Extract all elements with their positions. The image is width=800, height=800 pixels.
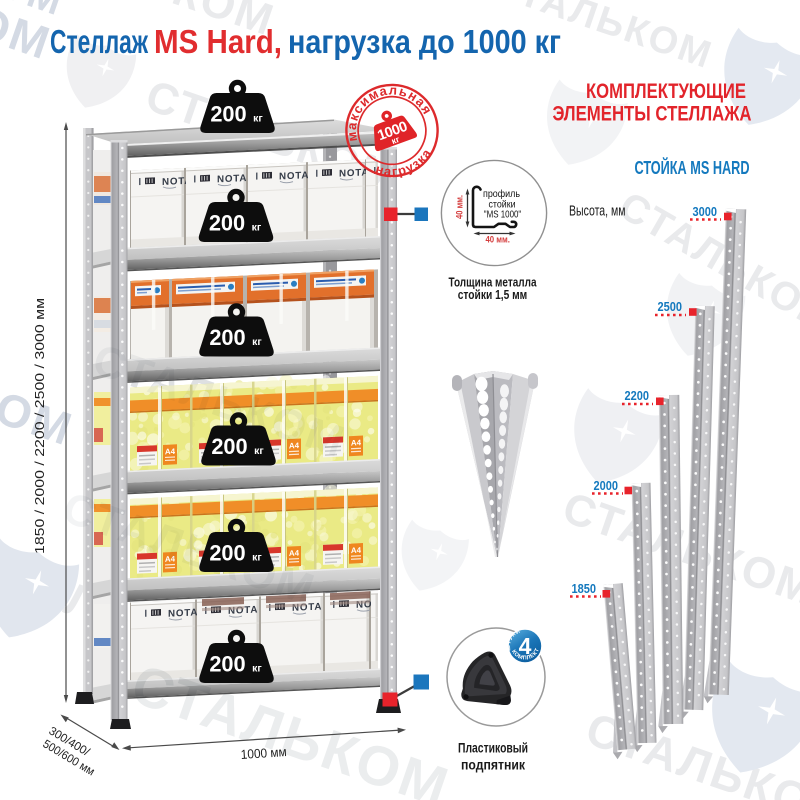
svg-text:200: 200 xyxy=(209,325,245,350)
svg-text:кг: кг xyxy=(254,445,264,457)
svg-text:200: 200 xyxy=(209,652,245,677)
svg-text:2000: 2000 xyxy=(594,479,619,493)
svg-text:A4: A4 xyxy=(165,447,176,457)
svg-text:"MS 1000": "MS 1000" xyxy=(484,210,522,221)
svg-text:подпятник: подпятник xyxy=(461,758,525,773)
svg-text:NOTA: NOTA xyxy=(279,170,309,182)
svg-text:A4: A4 xyxy=(351,546,362,556)
svg-text:1850: 1850 xyxy=(572,582,597,596)
svg-text:3000: 3000 xyxy=(693,205,718,219)
svg-text:A4: A4 xyxy=(289,549,300,559)
svg-text:A4: A4 xyxy=(351,438,362,448)
svg-text:нагрузка до 1000 кг: нагрузка до 1000 кг xyxy=(288,23,561,60)
svg-text:СТОЙКА MS HARD: СТОЙКА MS HARD xyxy=(635,157,750,178)
svg-text:кг: кг xyxy=(253,113,263,125)
svg-text:КОМПЛЕКТУЮЩИЕ: КОМПЛЕКТУЮЩИЕ xyxy=(586,80,746,103)
svg-text:кг: кг xyxy=(252,222,262,234)
svg-text:кг: кг xyxy=(252,336,262,348)
svg-text:2200: 2200 xyxy=(625,389,650,403)
svg-text:MS Hard,: MS Hard, xyxy=(154,23,282,60)
svg-text:200: 200 xyxy=(209,211,245,236)
svg-text:стойки 1,5 мм: стойки 1,5 мм xyxy=(458,288,528,302)
svg-text:40 мм.: 40 мм. xyxy=(455,195,465,219)
svg-text:Пластиковый: Пластиковый xyxy=(458,741,528,756)
svg-text:NOTA: NOTA xyxy=(339,167,369,179)
svg-text:кг: кг xyxy=(252,552,262,564)
svg-text:Высота, мм: Высота, мм xyxy=(569,204,626,220)
svg-text:Стеллаж: Стеллаж xyxy=(50,23,148,60)
svg-text:кг: кг xyxy=(252,663,262,675)
svg-text:NOTA: NOTA xyxy=(217,173,247,185)
svg-text:1850 / 2000 / 2200 / 2500 / 30: 1850 / 2000 / 2200 / 2500 / 3000 мм xyxy=(32,298,47,554)
svg-text:200: 200 xyxy=(210,102,246,127)
svg-text:200: 200 xyxy=(211,434,247,459)
svg-text:40 мм.: 40 мм. xyxy=(485,235,510,246)
svg-text:2500: 2500 xyxy=(658,300,683,314)
svg-text:NOTA: NOTA xyxy=(168,607,198,619)
svg-text:профиль: профиль xyxy=(483,188,520,200)
svg-text:1000 мм: 1000 мм xyxy=(240,744,287,762)
svg-text:200: 200 xyxy=(209,541,245,566)
svg-text:ЭЛЕМЕНТЫ СТЕЛЛАЖА: ЭЛЕМЕНТЫ СТЕЛЛАЖА xyxy=(553,103,752,126)
